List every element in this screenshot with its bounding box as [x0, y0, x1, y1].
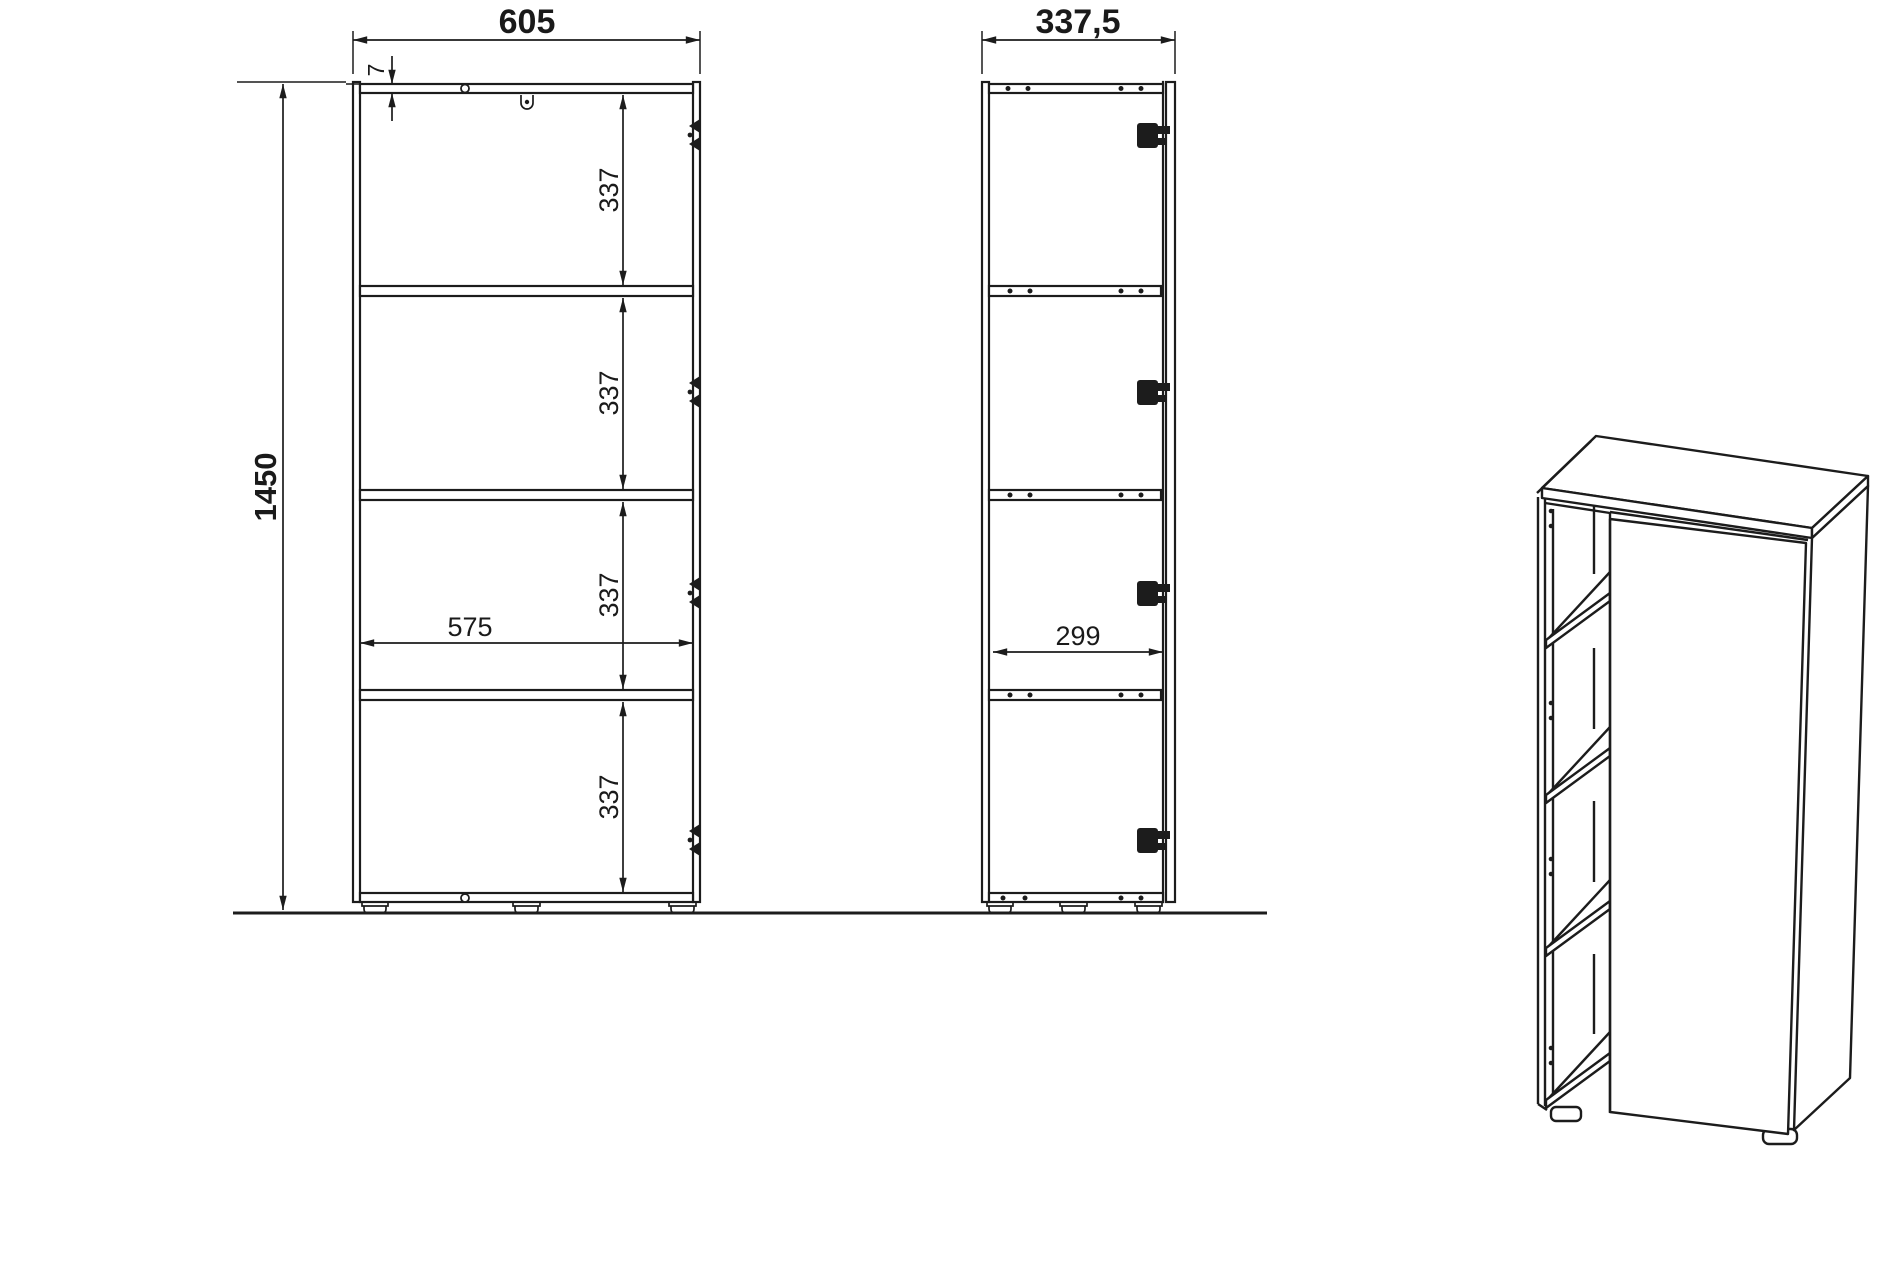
dim-depth: 337,5	[982, 3, 1175, 74]
dim-height-label: 1450	[248, 453, 283, 522]
foot	[513, 902, 540, 913]
dim-shelf-spacing-3: 337	[594, 502, 624, 689]
side-door-panel	[1166, 82, 1175, 902]
foot	[1060, 902, 1087, 913]
foot	[1551, 1107, 1581, 1121]
foot	[1135, 902, 1162, 913]
front-shelf-2	[360, 490, 693, 500]
dim-shelf-spacing-2: 337	[594, 298, 624, 489]
side-shelf-1	[989, 286, 1161, 296]
iso-view	[1537, 436, 1868, 1144]
side-bottom-panel	[989, 893, 1163, 902]
iso-door-panel	[1610, 519, 1806, 1134]
dim-inner-width-label: 575	[447, 612, 492, 642]
cam-screw-icon	[461, 85, 469, 93]
front-view: 605 1450 7 337 337 337	[237, 3, 700, 913]
dim-shelf-spacing-label-1: 337	[594, 167, 624, 212]
side-shelf-3	[989, 690, 1161, 700]
dim-top-thickness-label: 7	[363, 64, 389, 77]
dim-shelf-spacing-label-4: 337	[594, 774, 624, 819]
iso-shelf	[1546, 880, 1610, 956]
dim-width: 605	[353, 3, 700, 74]
front-bottom-panel	[360, 893, 693, 902]
side-shelf-2	[989, 490, 1161, 500]
dim-inner-width: 575	[360, 612, 693, 643]
iso-shelf	[1546, 572, 1610, 648]
iso-bottom-panel	[1546, 1032, 1610, 1108]
foot	[987, 902, 1013, 913]
dim-height: 1450	[237, 82, 346, 910]
dim-shelf-spacing-4: 337	[594, 702, 624, 892]
dim-inner-depth-label: 299	[1055, 621, 1100, 651]
foot	[362, 902, 388, 913]
front-shelf-1	[360, 286, 693, 296]
dim-shelf-spacing-1: 337	[594, 95, 624, 285]
iso-shelf	[1546, 727, 1610, 803]
dim-depth-label: 337,5	[1035, 3, 1120, 41]
front-top-panel	[360, 84, 693, 93]
foot	[669, 902, 696, 913]
front-shelf-3	[360, 690, 693, 700]
side-view: 337,5 299	[982, 3, 1175, 913]
cabinet-technical-drawing: 605 1450 7 337 337 337	[0, 0, 1880, 1275]
cam-screw-icon	[461, 894, 469, 902]
dim-width-label: 605	[499, 3, 556, 41]
technical-drawing-page: 605 1450 7 337 337 337	[0, 0, 1880, 1275]
dim-shelf-spacing-label-3: 337	[594, 572, 624, 617]
side-top-panel	[989, 84, 1163, 93]
dim-inner-depth: 299	[993, 621, 1163, 652]
dim-shelf-spacing-label-2: 337	[594, 370, 624, 415]
hanger-pin-icon	[525, 100, 529, 104]
